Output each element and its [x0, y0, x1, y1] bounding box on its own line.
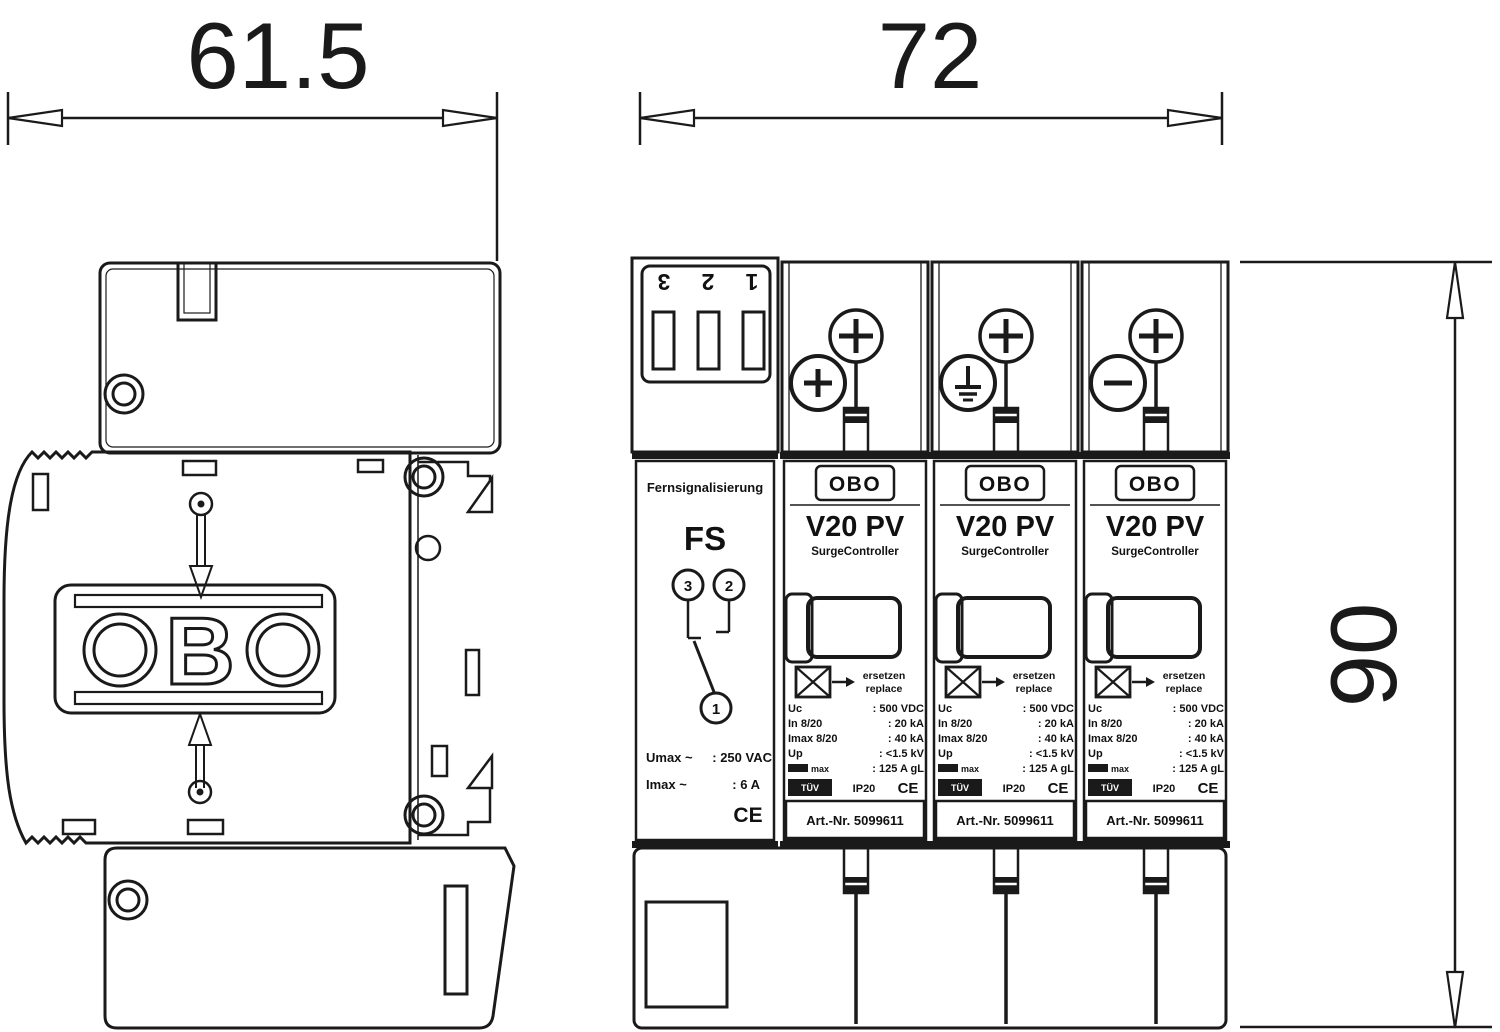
logo-letter-b: B: [165, 598, 234, 705]
fs-module: 3 2 1 Fernsignalisierung FS 3 2 1: [632, 258, 778, 848]
device-body: B: [4, 452, 410, 843]
arrowhead-down-icon: [1447, 972, 1463, 1028]
body-slot: [188, 820, 223, 834]
body-slot: [33, 474, 48, 510]
fs-terminal-number: 3: [658, 269, 671, 295]
fs-title-small: Fernsignalisierung: [647, 480, 763, 495]
technical-drawing-page: OBO V20 PV SurgeController ersetzen repl…: [0, 0, 1500, 1032]
dim-depth-label: 61.5: [187, 3, 370, 108]
din-rail: [405, 455, 492, 840]
fs-rating-value: : 250 VAC: [712, 750, 772, 765]
arrowhead-right-icon: [443, 110, 497, 126]
screw-hole-icon: [105, 375, 143, 413]
dimension-depth: 61.5: [8, 3, 497, 261]
fs-bottom-slot: [646, 902, 727, 1007]
changeover-contact-symbol: 3 2 1: [673, 570, 744, 723]
fs-terminal-number: 2: [702, 269, 715, 295]
contact-number: 3: [684, 578, 692, 595]
body-slot: [63, 820, 95, 834]
front-view: 3 2 1 Fernsignalisierung FS 3 2 1: [632, 258, 1230, 1028]
top-cover: [100, 263, 500, 453]
release-arrow-up-icon: [189, 714, 211, 803]
arrowhead-right-icon: [1168, 110, 1222, 126]
fs-rating-value: : 6 A: [732, 777, 760, 792]
polarity-plus-icon: [791, 356, 845, 410]
contact-number: 2: [725, 578, 733, 595]
dim-height-label: 90: [1311, 603, 1416, 708]
v20-module-2: [930, 262, 1080, 1024]
fs-terminal-slot: [698, 312, 719, 369]
dimensional-drawing: OBO V20 PV SurgeController ersetzen repl…: [0, 0, 1500, 1032]
fs-title-large: FS: [684, 520, 726, 557]
obo-logo-plate: B: [55, 585, 335, 713]
fs-rating-label: Umax ~: [646, 750, 693, 765]
fs-terminal-slot: [653, 312, 674, 369]
side-view: B: [4, 263, 514, 1028]
fs-terminal-number: 1: [745, 269, 758, 295]
polarity-minus-icon: [1091, 356, 1145, 410]
release-arrow-down-icon: [190, 493, 212, 597]
arrowhead-left-icon: [8, 110, 62, 126]
v20-module-3: [1080, 262, 1230, 1024]
rail-slot: [432, 746, 447, 776]
body-slot: [183, 461, 216, 475]
housing-seam-top: [632, 452, 778, 459]
front-bottom-cover: [634, 848, 1226, 1028]
dimension-width: 72: [640, 3, 1222, 145]
body-slot: [358, 460, 383, 472]
fs-terminal-block: 3 2 1: [642, 266, 770, 382]
contact-number: 1: [712, 701, 720, 718]
fs-rating-label: Imax ~: [646, 777, 687, 792]
v20-module-1: [780, 262, 930, 1024]
arrowhead-left-icon: [640, 110, 694, 126]
fs-terminal-slot: [743, 312, 764, 369]
cover-slot: [445, 886, 467, 994]
screw-hole-icon: [109, 881, 147, 919]
rail-hook-top: [468, 478, 492, 512]
rail-hole-small: [416, 536, 440, 560]
polarity-earth-icon: [941, 356, 995, 410]
dim-width-label: 72: [878, 3, 983, 108]
dimension-height: 90: [1240, 262, 1492, 1028]
ce-mark: CE: [733, 804, 762, 827]
bottom-cover: [105, 848, 514, 1028]
arrowhead-up-icon: [1447, 262, 1463, 318]
rail-slot: [466, 650, 479, 695]
rail-hook-bottom: [468, 756, 492, 788]
